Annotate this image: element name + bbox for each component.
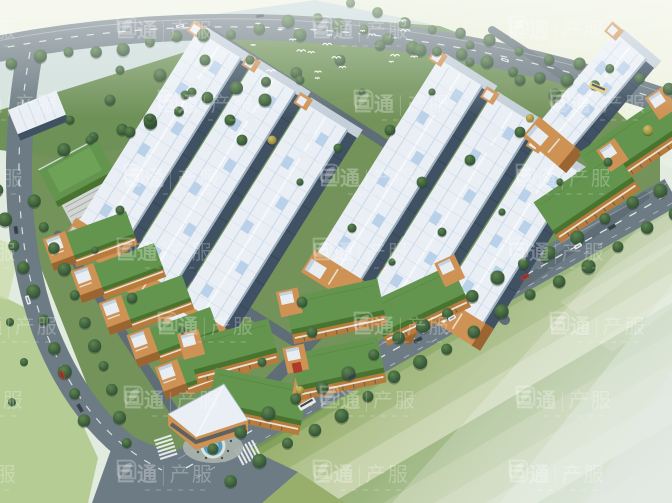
- aerial-rendering: 巨通|产服 巨通|产服 巨通|产服: [0, 0, 672, 503]
- scene-svg: [0, 0, 672, 503]
